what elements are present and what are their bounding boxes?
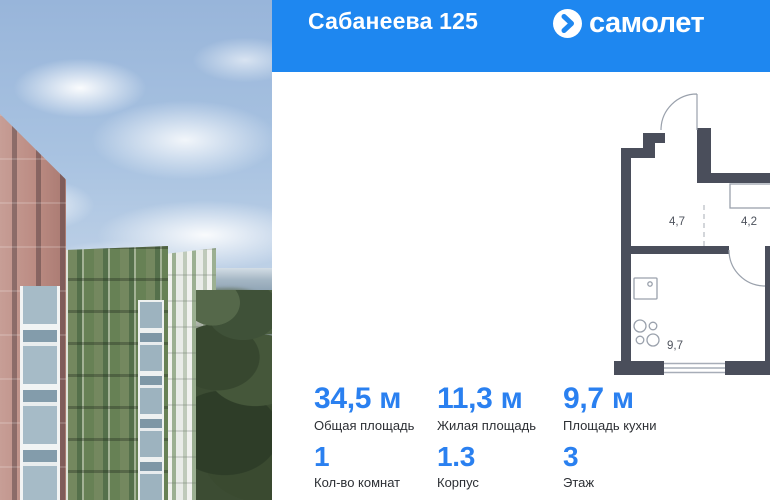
stat-value: 11,3 м — [437, 384, 536, 414]
stove-burner — [647, 334, 659, 346]
room-label-hallway: 4,7 — [669, 216, 685, 228]
green-building-balconies — [138, 300, 164, 500]
header-bar: Сабанеева 125 самолет — [272, 0, 770, 72]
listing-card[interactable]: Сабанеева 125 самолет — [0, 0, 770, 500]
stat-label: Корпус — [437, 475, 479, 490]
stat-value: 3 — [563, 443, 594, 471]
project-title: Сабанеева 125 — [308, 8, 478, 35]
brand-name: самолет — [589, 8, 704, 39]
samolet-logo-icon — [553, 9, 582, 38]
kitchen-sink — [634, 278, 657, 299]
stat-rooms-count: 1 Кол-во комнат — [314, 443, 400, 490]
stat-value: 34,5 м — [314, 384, 414, 414]
stove-burner — [634, 320, 646, 332]
pink-building-balconies — [20, 286, 60, 500]
foreground-trees — [196, 290, 272, 500]
stat-value: 1.3 — [437, 443, 479, 471]
stat-label: Площадь кухни — [563, 418, 656, 433]
window-lines — [664, 283, 770, 373]
stat-kitchen-area: 9,7 м Площадь кухни — [563, 384, 656, 433]
stat-label: Жилая площадь — [437, 418, 536, 433]
stat-label: Общая площадь — [314, 418, 414, 433]
fixtures — [634, 181, 770, 346]
stat-label: Кол-во комнат — [314, 475, 400, 490]
stat-total-area: 34,5 м Общая площадь — [314, 384, 414, 433]
stove-burner — [649, 322, 657, 330]
building-photo — [0, 0, 272, 500]
room-label-corridor: 4,2 — [741, 216, 757, 228]
room-label-kitchen: 9,7 — [667, 340, 683, 352]
stat-building: 1.3 Корпус — [437, 443, 479, 490]
stove-burner — [636, 336, 644, 344]
stat-label: Этаж — [563, 475, 594, 490]
stat-value: 1 — [314, 443, 400, 471]
floor-plan: 4,7 4,2 4,6 9,7 11,3 — [607, 78, 770, 388]
samolet-logo[interactable]: самолет — [553, 8, 704, 39]
stat-living-area: 11,3 м Жилая площадь — [437, 384, 536, 433]
wardrobe-niche — [730, 184, 770, 208]
stat-value: 9,7 м — [563, 384, 656, 414]
stat-floor: 3 Этаж — [563, 443, 594, 490]
